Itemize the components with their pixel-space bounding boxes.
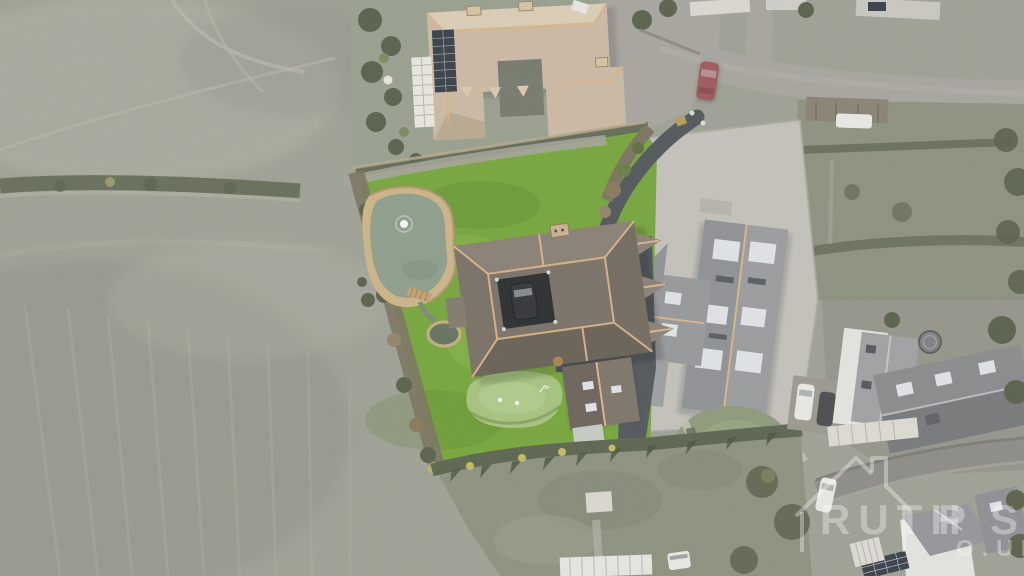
aerial-photo: RUTH P S O.UK <box>0 0 1024 576</box>
aerial-photo-canvas: RUTH P S O.UK <box>0 0 1024 576</box>
watermark-text-url: O.UK <box>956 535 1024 561</box>
photo-grain <box>0 0 1024 576</box>
